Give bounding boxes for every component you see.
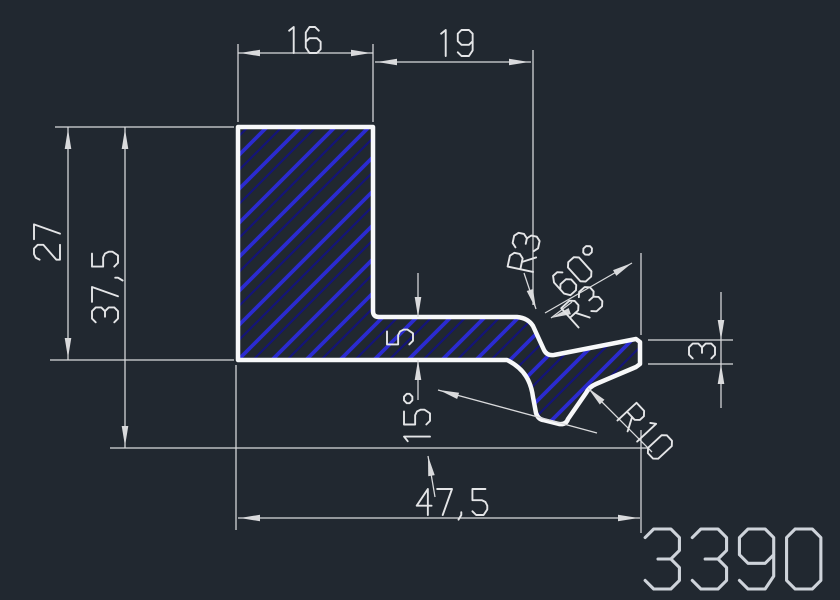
cad-canvas (0, 0, 840, 600)
cad-viewport (0, 0, 840, 600)
